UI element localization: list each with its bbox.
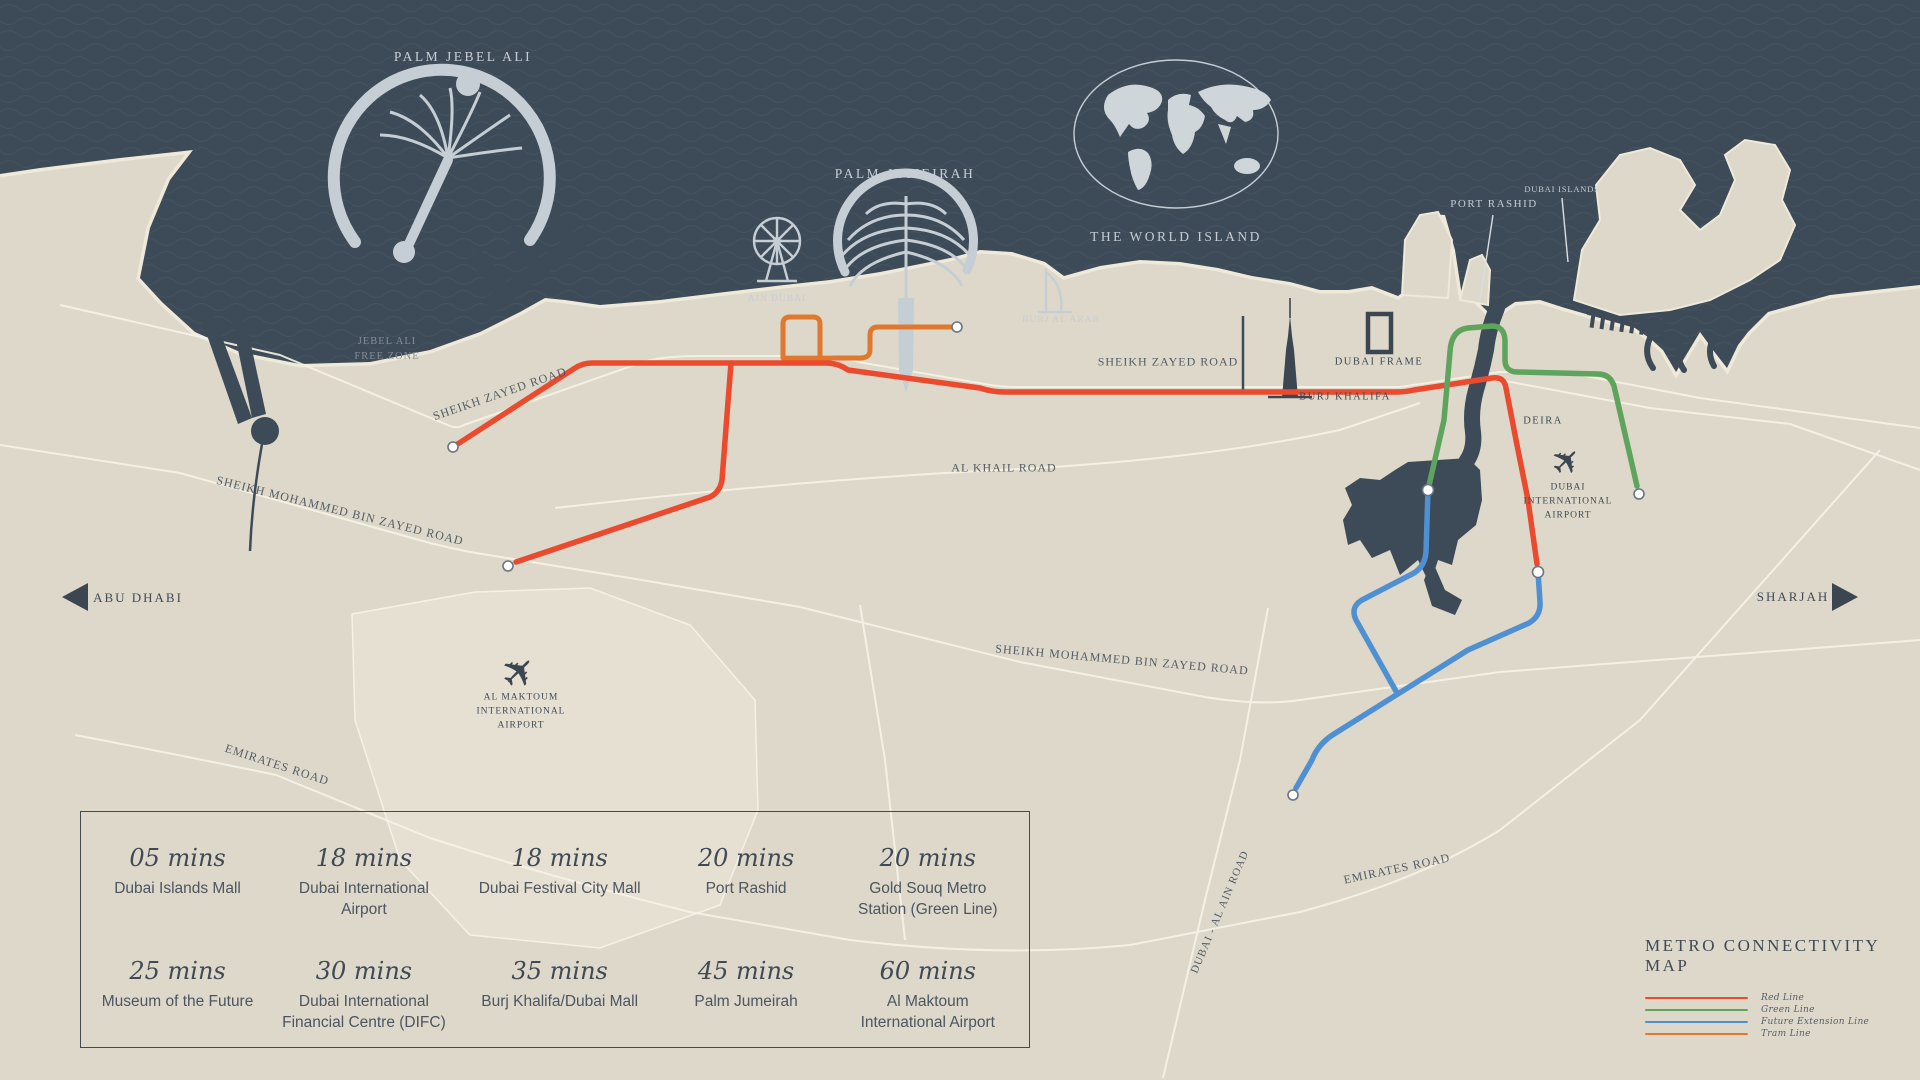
red-line-label: Red Line <box>1761 993 1804 1003</box>
travel-time-item: 45 mins Palm Jumeirah <box>658 957 835 1034</box>
travel-time-item: 05 mins Dubai Islands Mall <box>89 844 266 921</box>
travel-time-item: 25 mins Museum of the Future <box>89 957 266 1034</box>
station-dot <box>1533 567 1544 578</box>
label-burj-al-arab: BURJ AL ARAB <box>1022 315 1100 325</box>
travel-time-destination: Palm Jumeirah <box>668 992 825 1013</box>
travel-time-destination: Dubai Festival City Mall <box>472 879 648 900</box>
label-the-world-island: THE WORLD ISLAND <box>1090 229 1262 245</box>
label-dubai-frame: DUBAI FRAME <box>1335 357 1424 368</box>
travel-time-value: 60 mins <box>845 957 1011 985</box>
tram-line-label: Tram Line <box>1761 1029 1811 1039</box>
label-deira: DEIRA <box>1523 416 1563 427</box>
travel-time-value: 20 mins <box>668 844 825 872</box>
tram-line-swatch <box>1645 1033 1748 1036</box>
travel-time-destination: Dubai International Airport <box>276 879 452 921</box>
legend-row-green: Green Line <box>1645 1004 1905 1016</box>
legend-row-blue: Future Extension Line <box>1645 1016 1905 1028</box>
label-palm-jumeirah: PALM JUMEIRAH <box>835 166 975 182</box>
station-dot <box>503 561 513 571</box>
station-dot <box>952 322 962 332</box>
travel-time-item: 20 mins Gold Souq Metro Station (Green L… <box>835 844 1021 921</box>
travel-time-item: 18 mins Dubai International Airport <box>266 844 462 921</box>
green-line-label: Green Line <box>1761 1005 1815 1015</box>
future-extension-line-label: Future Extension Line <box>1761 1017 1869 1027</box>
travel-time-destination: Port Rashid <box>668 879 825 900</box>
travel-time-destination: Museum of the Future <box>99 992 256 1013</box>
red-line-swatch <box>1645 997 1748 1000</box>
station-dot <box>1288 790 1298 800</box>
label-abu-dhabi: ABU DHABI <box>93 590 183 606</box>
station-dot <box>1634 489 1644 499</box>
travel-time-value: 20 mins <box>845 844 1011 872</box>
travel-time-item: 18 mins Dubai Festival City Mall <box>462 844 658 921</box>
label-dubai-international-airport: DUBAI INTERNATIONAL AIRPORT <box>1524 481 1613 522</box>
travel-time-item: 60 mins Al Maktoum International Airport <box>835 957 1021 1034</box>
legend-row-tram: Tram Line <box>1645 1028 1905 1040</box>
travel-time-item: 30 mins Dubai International Financial Ce… <box>266 957 462 1034</box>
travel-time-value: 35 mins <box>472 957 648 985</box>
future-extension-line-swatch <box>1645 1021 1748 1024</box>
travel-time-destination: Dubai International Financial Centre (DI… <box>276 992 452 1034</box>
travel-time-destination: Gold Souq Metro Station (Green Line) <box>845 879 1011 921</box>
travel-time-destination: Dubai Islands Mall <box>99 879 256 900</box>
travel-time-value: 25 mins <box>99 957 256 985</box>
label-jebel-ali-free-zone: JEBEL ALI FREE ZONE <box>354 334 419 364</box>
label-burj-khalifa: BURJ KHALIFA <box>1299 392 1391 403</box>
green-line-swatch <box>1645 1009 1748 1012</box>
travel-time-value: 30 mins <box>276 957 452 985</box>
travel-time-item: 35 mins Burj Khalifa/Dubai Mall <box>462 957 658 1034</box>
travel-time-value: 45 mins <box>668 957 825 985</box>
metro-legend-title: METRO CONNECTIVITY MAP <box>1645 936 1905 976</box>
label-sharjah: SHARJAH <box>1757 589 1830 605</box>
label-palm-jebel-ali: PALM JEBEL ALI <box>394 49 532 65</box>
station-dot <box>448 442 458 452</box>
station-dot <box>1423 485 1434 496</box>
travel-time-destination: Burj Khalifa/Dubai Mall <box>472 992 648 1013</box>
jebel-ali-basin <box>251 417 279 445</box>
travel-time-destination: Al Maktoum International Airport <box>845 992 1011 1034</box>
metro-connectivity-map: PALM JEBEL ALI PALM JUMEIRAH THE WORLD I… <box>0 0 1920 1080</box>
legend-row-red: Red Line <box>1645 992 1905 1004</box>
metro-legend-panel: METRO CONNECTIVITY MAP Red Line Green Li… <box>1645 936 1905 1040</box>
travel-time-value: 05 mins <box>99 844 256 872</box>
travel-time-item: 20 mins Port Rashid <box>658 844 835 921</box>
label-dubai-islands: DUBAI ISLANDS <box>1524 184 1599 194</box>
label-sheikh-zayed-road-east: SHEIKH ZAYED ROAD <box>1098 355 1239 370</box>
travel-times-panel: 05 mins Dubai Islands Mall 18 mins Dubai… <box>80 811 1030 1048</box>
label-port-rashid: PORT RASHID <box>1450 198 1537 210</box>
travel-time-value: 18 mins <box>276 844 452 872</box>
label-al-khail-road: AL KHAIL ROAD <box>951 461 1056 476</box>
travel-time-value: 18 mins <box>472 844 648 872</box>
label-ain-dubai: AIN DUBAI <box>748 294 806 304</box>
